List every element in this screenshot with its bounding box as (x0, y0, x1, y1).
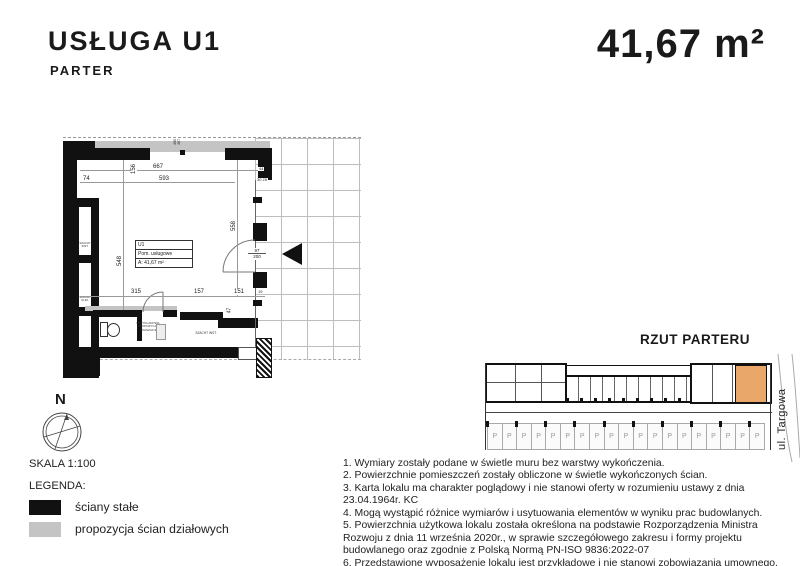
parking-stall: P (750, 423, 765, 450)
parking-stall: P (619, 423, 634, 450)
parking-stall: P (546, 423, 561, 450)
floor-label: PARTER (50, 63, 114, 78)
north-label: N (55, 391, 66, 408)
boundary-dashed-top (63, 137, 361, 138)
dim-label: 287 (178, 139, 182, 145)
dim-label: 558 (231, 220, 237, 232)
note-item: 2. Powierzchnie pomieszczeń zostały obli… (343, 470, 799, 482)
dim-label: 47 (227, 307, 232, 315)
note-item: 6. Przedstawione wyposażenie lokalu jest… (343, 558, 799, 566)
room-area: A: 41,67 m² (136, 258, 192, 267)
dim-line (237, 160, 238, 296)
site-boundary-left (485, 363, 486, 450)
legend-swatch (29, 500, 61, 515)
parking-stall: P (532, 423, 547, 450)
door-size-label: 97 200 (248, 248, 266, 260)
parking-stall: P (575, 423, 590, 450)
dim-label: 44 (258, 167, 264, 171)
wall-segment (63, 356, 100, 376)
building-interior-line (541, 365, 542, 401)
legend-label: ściany stałe (75, 500, 139, 514)
parking-stall: P (721, 423, 736, 450)
parking-stall: P (605, 423, 620, 450)
parking-stall: P (487, 423, 503, 450)
street-label: ul. Targowa (776, 368, 788, 450)
legend-label: propozycja ścian działowych (75, 522, 229, 536)
building-columns (566, 398, 690, 401)
bathroom-door-swing (142, 290, 164, 314)
partition-marker (180, 150, 185, 155)
wall-segment (163, 310, 177, 317)
compass-icon (40, 410, 84, 454)
dim-line (80, 182, 235, 183)
parking-stall: P (678, 423, 693, 450)
dim-label: 315 (130, 289, 142, 295)
building-interior-line (515, 365, 516, 401)
parking-stall: P (634, 423, 649, 450)
dim-label: 548 (117, 255, 123, 267)
legend-title: LEGENDA: (29, 480, 86, 492)
site-plan-title: RZUT PARTERU (640, 332, 750, 347)
parking-stall: P (736, 423, 751, 450)
site-plan: RZUT PARTERU PPPPPPPPPPPPPPPPPPP ul. Tar… (480, 332, 798, 464)
unit-title: USŁUGA U1 (48, 26, 221, 57)
unit-area: 41,67 m² (520, 22, 765, 67)
wall-segment (63, 141, 77, 378)
dim-label-partition: 280 287 (174, 139, 182, 145)
note-item: 3. Karta lokalu ma charakter poglądowy i… (343, 483, 799, 508)
legend-row: propozycja ścian działowych (29, 518, 289, 540)
parking-row: PPPPPPPPPPPPPPPPPPP (487, 423, 765, 450)
dim-label: 593 (158, 176, 170, 182)
walkway-line (485, 412, 772, 413)
dim-label: 74 (82, 176, 91, 182)
notes-list: 1. Wymiary zostały podane w świetle muru… (343, 458, 799, 566)
legend-swatch (29, 522, 61, 537)
dim-label: 157 (193, 289, 205, 295)
building-interior-line (712, 365, 713, 402)
legend-items: ściany stałepropozycja ścian działowych (29, 496, 289, 540)
highlighted-unit (735, 365, 767, 403)
parking-stall: P (663, 423, 678, 450)
hatched-wall (256, 338, 272, 378)
shaft-room-label: SZACHT INST. (192, 332, 220, 336)
dim-line (80, 296, 265, 297)
parking-stall: P (503, 423, 518, 450)
building-interior-line (732, 365, 733, 402)
parking-stall: P (707, 423, 722, 450)
entrance-pier (253, 272, 267, 288)
note-item: 4. Mogą wystąpić różnice wymiarów i usyt… (343, 508, 799, 520)
parking-stall: P (590, 423, 605, 450)
room-usage: Pom. usługowe (136, 249, 192, 258)
wall-segment (180, 312, 223, 320)
dim-label: 30 25 (256, 178, 268, 182)
dim-line (80, 170, 258, 171)
parking-stall: P (692, 423, 707, 450)
wall-stub (253, 300, 262, 306)
toilet-bowl (107, 323, 120, 337)
building-left-block (485, 363, 567, 403)
parking-stall: P (517, 423, 532, 450)
dim-label: 156 (131, 163, 137, 175)
room-id: U1 (136, 241, 192, 249)
shaft-access (238, 347, 258, 360)
parking-stall: P (648, 423, 663, 450)
wall-segment (93, 310, 142, 317)
dim-label: 667 (152, 164, 164, 170)
floor-plan-drawing: SZACHT INST. SZACHT KLIM. PRZYKŁADOWA PR… (60, 128, 362, 380)
wall-stub (253, 197, 262, 203)
dim-line (123, 160, 124, 310)
sink (156, 324, 166, 340)
boundary-dashed-bottom (80, 359, 361, 360)
room-info-box: U1 Pom. usługowe A: 41,67 m² (135, 240, 193, 268)
floor-plan-card: USŁUGA U1 PARTER 41,67 m² SZACHT INST. S… (0, 0, 800, 566)
building-interior-line (487, 382, 565, 383)
dim-label: 19 (257, 290, 263, 294)
wall-segment (218, 318, 258, 328)
scale-label: SKALA 1:100 (29, 458, 96, 470)
legend-row: ściany stałe (29, 496, 289, 518)
wall-segment (258, 148, 272, 180)
note-item: 5. Powierzchnia użytkowa lokalu została … (343, 520, 799, 557)
door-height: 200 (248, 254, 266, 259)
parking-stall: P (561, 423, 576, 450)
shaft-niche-label: SZACHT INST. (79, 242, 91, 248)
dim-label: 151 (233, 289, 245, 295)
